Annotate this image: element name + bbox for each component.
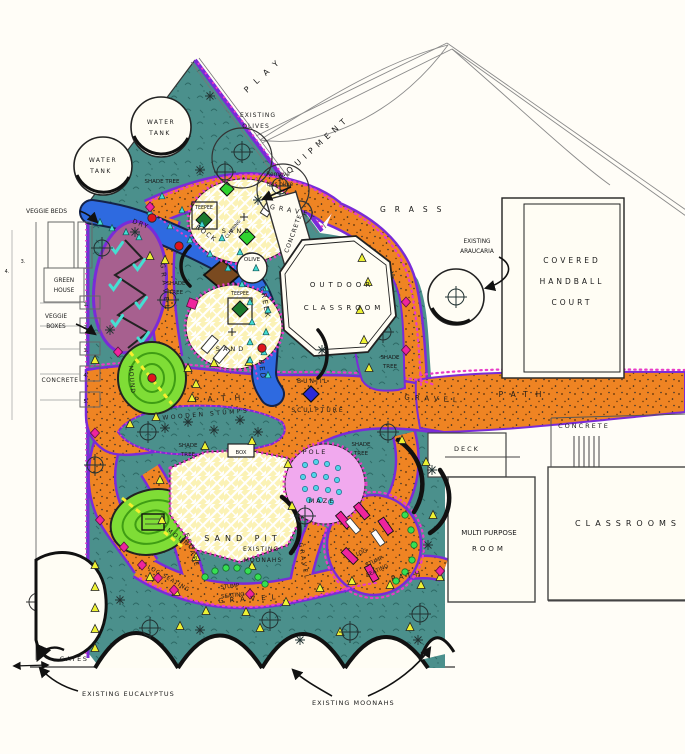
svg-text:TANK: TANK — [148, 130, 171, 137]
bed-number: 2. — [83, 325, 88, 331]
label-grass: GRASS — [380, 205, 450, 214]
label-existing-eucalyptus: EXISTING EUCALYPTUS — [82, 690, 175, 698]
label-veggie-boxes: VEGGIE — [45, 314, 67, 320]
label-shade-tree: SHADE — [380, 355, 400, 361]
label-concrete: CONCRETE — [41, 377, 78, 384]
label-path: PATH — [499, 390, 550, 399]
svg-text:MOONAHS: MOONAHS — [244, 557, 283, 564]
label-play: PLAY — [242, 54, 286, 95]
label-pole: POLE — [303, 448, 328, 456]
svg-text:COURT: COURT — [552, 298, 593, 307]
svg-text:ROOM: ROOM — [472, 545, 506, 553]
svg-text:CLASSROOM: CLASSROOM — [304, 304, 385, 312]
label-olive: OLIVE — [244, 257, 261, 263]
svg-text:BOXES: BOXES — [46, 324, 66, 330]
label-green-house: GREEN — [54, 278, 74, 284]
svg-text:TREE: TREE — [180, 452, 196, 458]
label-existing-moonahs: EXISTING — [243, 546, 279, 553]
label-water-tank: WATER — [147, 119, 175, 126]
label-outdoor-classroom: OUTDOOR — [310, 281, 374, 289]
label-maze: MAZE — [309, 497, 336, 505]
label-gates: GATES — [60, 655, 89, 663]
label-shade-tree: SHADE — [178, 443, 198, 449]
label-classrooms: CLASSROOMS — [575, 519, 681, 528]
svg-text:TANK: TANK — [89, 168, 112, 175]
svg-text:ARAUCARIA: ARAUCARIA — [460, 249, 494, 255]
label-teepee: TEEPEE — [230, 291, 249, 297]
label-existing-araucaria: EXISTING — [463, 239, 491, 245]
label-existing-moonahs: EXISTING MOONAHS — [312, 699, 395, 707]
site-plan-drawing: PLAY EQUIPMENT GRASS WATER TANK WATER TA… — [0, 0, 685, 754]
svg-text:TREE: TREE — [168, 290, 184, 296]
green-house — [44, 268, 84, 302]
bed-number: 3. — [21, 259, 26, 265]
label-shade-tree: SHADE TREE — [145, 179, 181, 185]
label-concrete: CONCRETE — [558, 422, 610, 430]
svg-text:OLIVES: OLIVES — [242, 123, 270, 130]
multi-purpose-room — [448, 477, 535, 602]
label-deck: DECK — [454, 445, 480, 453]
bed-number: 4. — [83, 373, 88, 379]
label-multi-purpose-room: MULTI PURPOSE — [461, 529, 516, 537]
classrooms-building — [548, 414, 685, 601]
label-shade-tree: SHADE — [351, 442, 371, 448]
label-water-tank: WATER — [89, 157, 117, 164]
bed-number: 3. — [83, 348, 88, 354]
label-shade-tree: SHADE — [166, 281, 186, 287]
svg-text:this olive: this olive — [267, 182, 294, 188]
bed-number: 1. — [83, 302, 88, 308]
label-handball-court: COVERED — [543, 256, 601, 265]
stairs — [574, 436, 599, 467]
svg-text:TREE: TREE — [382, 364, 398, 370]
bed-number: 4. — [5, 269, 10, 275]
covered-handball-court — [502, 198, 624, 378]
svg-text:HOUSE: HOUSE — [54, 288, 75, 294]
label-existing-olives: EXISTING — [240, 112, 276, 119]
label-sand: SAND — [216, 345, 247, 353]
label-sand-pit: SAND PIT — [204, 534, 281, 543]
site-plan: PLAY EQUIPMENT GRASS WATER TANK WATER TA… — [0, 0, 685, 754]
label-bunjil: BUNJIL — [297, 378, 329, 385]
outdoor-classroom — [280, 236, 396, 356]
label-teepee: TEEPEE — [194, 205, 213, 211]
label-veggie-beds: VEGGIE BEDS — [26, 208, 67, 215]
svg-text:TREE: TREE — [353, 451, 369, 457]
label-box: BOX — [236, 450, 247, 456]
svg-text:HANDBALL: HANDBALL — [540, 277, 605, 286]
label-remove-olive: Remove — [266, 172, 290, 178]
svg-text:SCULPTURE: SCULPTURE — [291, 407, 344, 414]
bed-number: 5. — [83, 399, 88, 405]
